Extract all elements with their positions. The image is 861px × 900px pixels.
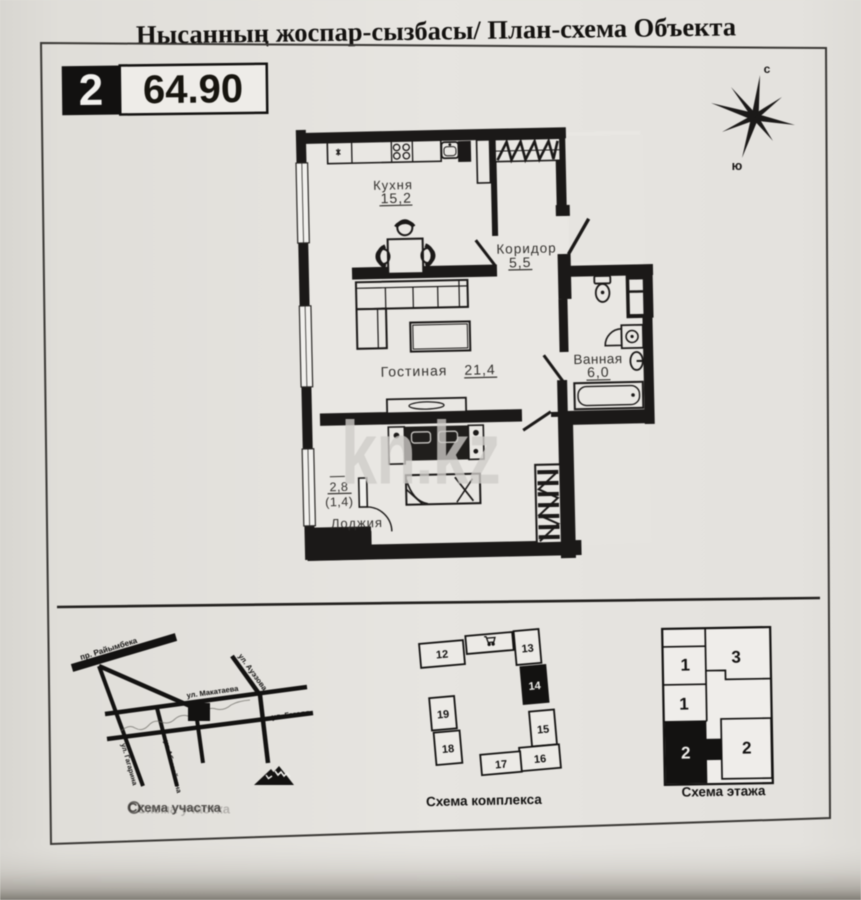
svg-text:1: 1 xyxy=(679,694,689,713)
svg-text:15,2: 15,2 xyxy=(380,190,412,207)
svg-text:3: 3 xyxy=(731,648,741,667)
svg-text:21,4: 21,4 xyxy=(464,361,496,378)
svg-text:1: 1 xyxy=(680,655,690,674)
svg-text:Схема комплекса: Схема комплекса xyxy=(426,792,543,809)
svg-text:64.90: 64.90 xyxy=(143,67,244,112)
svg-text:kn.kz: kn.kz xyxy=(341,402,500,503)
svg-text:5,5: 5,5 xyxy=(509,254,532,270)
svg-text:Схема участка: Схема участка xyxy=(128,800,222,815)
svg-text:13: 13 xyxy=(521,642,534,655)
svg-text:2: 2 xyxy=(681,743,691,762)
svg-text:16: 16 xyxy=(534,753,547,766)
svg-text:17: 17 xyxy=(495,758,508,771)
svg-text:2: 2 xyxy=(78,66,103,115)
svg-text:6,0: 6,0 xyxy=(587,364,610,380)
svg-text:18: 18 xyxy=(442,743,455,756)
svg-text:19: 19 xyxy=(437,708,450,721)
svg-text:14: 14 xyxy=(528,680,542,693)
svg-text:Схема этажа: Схема этажа xyxy=(681,783,766,799)
svg-text:Лоджия: Лоджия xyxy=(331,515,383,531)
svg-text:ю: ю xyxy=(732,159,743,173)
svg-text:с: с xyxy=(764,62,771,76)
svg-text:12: 12 xyxy=(435,648,448,661)
svg-text:2: 2 xyxy=(742,738,752,757)
svg-text:15: 15 xyxy=(537,723,550,736)
svg-text:Гостиная: Гостиная xyxy=(380,362,447,379)
